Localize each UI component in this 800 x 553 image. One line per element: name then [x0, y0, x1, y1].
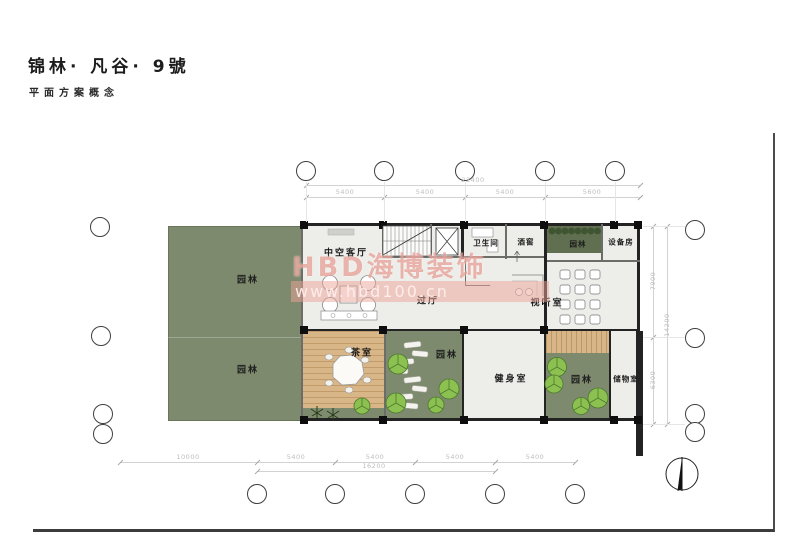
dimension-label: 5400	[287, 453, 306, 461]
grid-bubble	[685, 220, 705, 240]
floor-plan-page: 锦林· 凡谷· 9號 平面方案概念	[0, 0, 800, 553]
dimension-label: 7900	[649, 272, 657, 291]
grid-bubble	[93, 424, 113, 444]
dimension-label: 14200	[663, 313, 671, 336]
dimension-label: 5400	[366, 453, 385, 461]
north-arrow-icon	[666, 457, 698, 491]
grid-bubble	[325, 484, 345, 504]
plant-icon	[311, 406, 339, 420]
extension-line	[384, 182, 385, 222]
dimension-line	[257, 471, 495, 472]
grid-bubble	[605, 161, 625, 181]
hedge-icon	[549, 228, 601, 235]
grid-bubble	[374, 161, 394, 181]
room-label-garden-hedge: 园林	[570, 239, 587, 250]
grid-bubble	[565, 484, 585, 504]
grid-bubble	[296, 161, 316, 181]
grid-bubble	[405, 484, 425, 504]
extension-line	[643, 226, 685, 227]
tree-icon	[386, 354, 459, 413]
room-label-tea-room: 茶室	[351, 346, 373, 359]
dimension-line	[306, 197, 640, 198]
extension-line	[465, 182, 466, 222]
dimension-line	[120, 462, 575, 463]
room-label-garden-left-top: 园林	[237, 273, 259, 286]
tree-icon	[354, 398, 370, 414]
grid-bubble	[247, 484, 267, 504]
room-label-storage: 储物室	[613, 374, 639, 385]
arrow-icon	[515, 251, 520, 262]
grid-bubble	[685, 328, 705, 348]
dimension-label: 5400	[336, 188, 355, 196]
watermark-brand-text: HBD海博装饰	[292, 245, 487, 284]
dimension-line	[653, 226, 654, 424]
dimension-label: 10000	[176, 453, 199, 461]
room-label-garden-middle: 园林	[436, 348, 458, 361]
room-label-gym: 健身室	[494, 372, 527, 385]
grid-bubble	[685, 422, 705, 442]
tree-icon	[545, 358, 608, 415]
room-label-equipment: 设备房	[608, 237, 634, 248]
extension-line	[545, 182, 546, 222]
watermark-url-text: www.hbd100.cn	[295, 282, 449, 301]
dimension-line	[306, 185, 640, 186]
room-label-garden-right: 园林	[571, 373, 593, 386]
grid-bubble	[90, 217, 110, 237]
extension-line	[615, 182, 616, 222]
dimension-label: 6300	[649, 371, 657, 390]
dimension-label: 5400	[526, 453, 545, 461]
room-label-wine-cellar: 酒窖	[518, 237, 535, 248]
dimension-label: 5400	[446, 453, 465, 461]
grid-bubble	[93, 404, 113, 424]
extension-line	[643, 337, 685, 338]
av-chairs	[560, 270, 600, 324]
grid-bubble	[485, 484, 505, 504]
dimension-label: 5400	[496, 188, 515, 196]
extension-line	[306, 182, 307, 222]
dimension-label: 5600	[583, 188, 602, 196]
grid-bubble	[535, 161, 555, 181]
dimension-label: 16200	[362, 462, 385, 470]
dimension-label: 5400	[416, 188, 435, 196]
extension-line	[643, 424, 685, 425]
grid-bubble	[685, 404, 705, 424]
grid-bubble	[91, 326, 111, 346]
room-label-garden-left-bottom: 园林	[237, 363, 259, 376]
